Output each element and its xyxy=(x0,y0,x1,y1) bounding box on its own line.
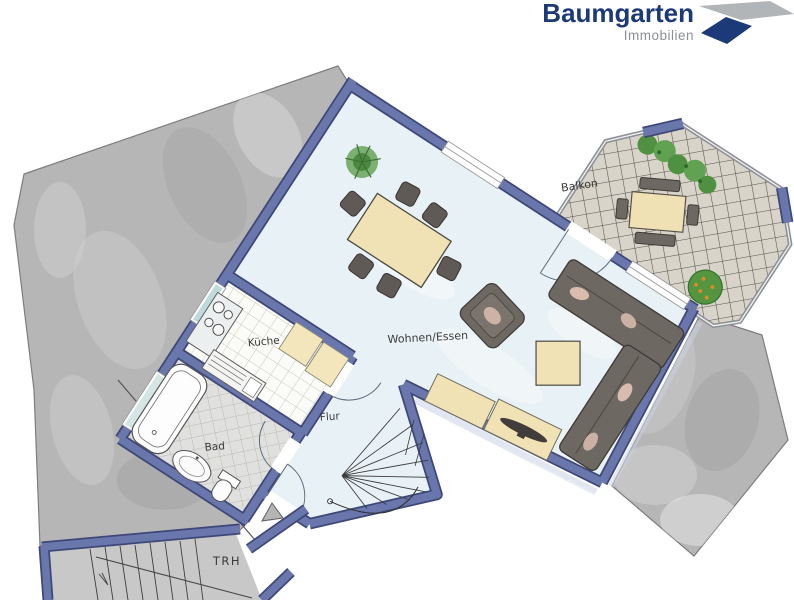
brand-subtitle: Immobilien xyxy=(624,28,694,43)
bad-label: Bad xyxy=(204,440,225,453)
brand-logo: Baumgarten Immobilien xyxy=(542,0,794,44)
brand-name: Baumgarten xyxy=(542,0,694,28)
floor-plan-canvas: Balkon Küche Wohnen/Essen Flur Bad TRH I… xyxy=(0,0,794,600)
balcony-stool xyxy=(686,205,699,226)
trh-label: TRH xyxy=(212,554,241,568)
coffee-table xyxy=(536,341,580,385)
logo-roof-navy xyxy=(701,17,752,44)
balcony-table xyxy=(629,192,686,233)
flur-label: Flur xyxy=(319,410,340,423)
floor-plan-page: Balkon Küche Wohnen/Essen Flur Bad TRH I… xyxy=(0,0,794,600)
balcony-stool xyxy=(616,198,629,219)
logo-roof-gray xyxy=(699,1,794,20)
